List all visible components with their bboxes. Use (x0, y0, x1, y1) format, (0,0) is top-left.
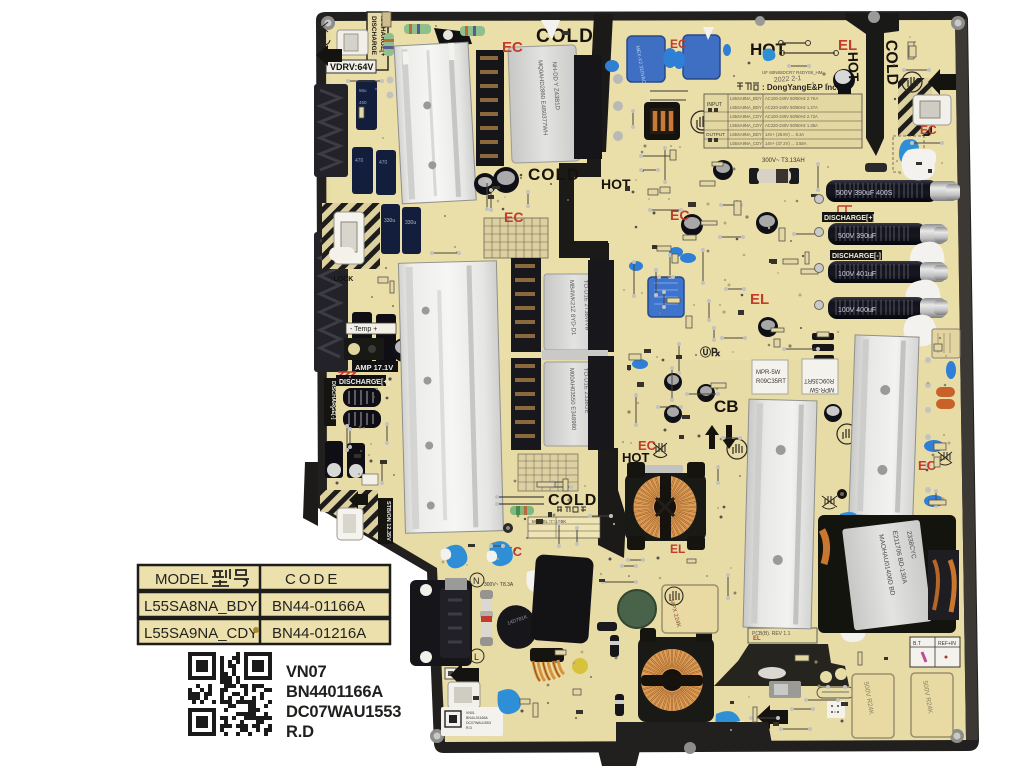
svg-text:INPUT: INPUT (707, 102, 722, 108)
svg-text:450: 450 (359, 100, 367, 105)
svg-text:L55SA8NA_BDY: L55SA8NA_BDY (144, 598, 257, 615)
svg-text:DISCHARGE: DISCHARGE (370, 16, 377, 56)
svg-text:COLD: COLD (548, 492, 597, 509)
svg-text:N: N (473, 576, 480, 586)
svg-text:AC220-240V 50/60Hz 1.35A: AC220-240V 50/60Hz 1.35A (765, 123, 818, 128)
svg-text:STB/ON 12.35V: STB/ON 12.35V (385, 501, 391, 541)
svg-text:L: L (474, 652, 479, 662)
svg-text:COLD: COLD (536, 26, 594, 47)
svg-text:EL: EL (750, 291, 769, 308)
svg-text:AC100-240V 50/60Hz 2.7KA: AC100-240V 50/60Hz 2.7KA (765, 96, 819, 101)
svg-text:EC: EC (638, 438, 657, 453)
svg-text:14V+ (28.8V) ... 8.3A: 14V+ (28.8V) ... 8.3A (765, 132, 804, 137)
svg-text:VN01: VN01 (466, 711, 475, 715)
svg-text:EC: EC (920, 123, 937, 137)
svg-text:L55SA8NA_BDY: L55SA8NA_BDY (730, 132, 762, 137)
svg-text:CODE: CODE (285, 571, 340, 588)
svg-text:EL: EL (753, 636, 761, 642)
svg-text:L55SA8NA_BDY: L55SA8NA_BDY (730, 96, 762, 101)
svg-text:300V~ T3.13AH: 300V~ T3.13AH (762, 158, 805, 164)
svg-text:REF+IN: REF+IN (938, 641, 956, 647)
svg-text:MPR-5W: MPR-5W (809, 386, 834, 392)
svg-text:DC07WAU1553: DC07WAU1553 (286, 703, 401, 721)
svg-text:L55SA8NA_BDY: L55SA8NA_BDY (730, 105, 762, 110)
svg-text:100V 401uF: 100V 401uF (838, 271, 876, 278)
svg-text:EL: EL (670, 542, 685, 556)
svg-text:OUTPUT: OUTPUT (706, 132, 725, 137)
svg-text:BN44-01166A: BN44-01166A (272, 598, 365, 615)
svg-text:R09C35RT: R09C35RT (756, 379, 786, 385)
svg-text:R.D: R.D (466, 726, 473, 730)
svg-text:330u: 330u (405, 220, 416, 226)
svg-text:DISCHARGE[-]: DISCHARGE[-] (330, 381, 336, 420)
svg-text:BN44-01166A: BN44-01166A (466, 716, 488, 720)
svg-text:EC: EC (504, 209, 523, 225)
svg-text:DC07WAU1553: DC07WAU1553 (466, 721, 491, 725)
svg-text:14V+ (37.2V) ... 3.58A: 14V+ (37.2V) ... 3.58A (765, 141, 807, 146)
svg-text:DISCHARGE[+]: DISCHARGE[+] (339, 379, 390, 386)
svg-text:AC100-240V 50/60Hz 2.72A: AC100-240V 50/60Hz 2.72A (765, 114, 818, 119)
svg-text:330u: 330u (384, 218, 395, 224)
svg-text:↑LOCK: ↑LOCK (330, 276, 353, 283)
svg-text:R.D: R.D (286, 723, 314, 741)
svg-text:VDRV:64V: VDRV:64V (330, 62, 373, 72)
svg-text:HOT: HOT (845, 52, 862, 83)
svg-text:DISCHARGE[-]: DISCHARGE[-] (832, 253, 881, 260)
svg-text:AC220-240V 50/60Hz 1.27A: AC220-240V 50/60Hz 1.27A (765, 105, 818, 110)
svg-text:EC: EC (670, 37, 687, 51)
svg-text:B.T: B.T (913, 641, 921, 647)
svg-text:- Temp +: - Temp + (350, 326, 377, 333)
svg-text:L55SA9NA_CDY: L55SA9NA_CDY (730, 141, 762, 146)
svg-text:AMP 17.1V: AMP 17.1V (355, 363, 393, 372)
svg-text:300V~ T8.3A: 300V~ T8.3A (484, 582, 514, 588)
svg-text:100V 400uF: 100V 400uF (838, 307, 876, 314)
svg-text:MODEL: MODEL (155, 571, 208, 588)
svg-text:L55SA9NA_CDY: L55SA9NA_CDY (144, 625, 258, 642)
svg-text:R09C35RT: R09C35RT (804, 377, 834, 383)
svg-text:L55SA9NA_CDY: L55SA9NA_CDY (730, 114, 762, 119)
svg-text:470: 470 (379, 160, 388, 166)
svg-text:470: 470 (355, 158, 364, 164)
svg-text:COLD: COLD (882, 40, 901, 86)
svg-text:BN44-01216A: BN44-01216A (272, 625, 366, 642)
svg-text:VN07: VN07 (286, 663, 326, 681)
svg-text:DISCHARGE[+]: DISCHARGE[+] (824, 215, 875, 222)
svg-text:BN4401166A: BN4401166A (286, 683, 383, 701)
svg-text:CB: CB (714, 397, 739, 416)
svg-text:MPR-5W: MPR-5W (756, 370, 781, 376)
svg-text:COLD: COLD (528, 165, 580, 184)
svg-text:UF 60N65DCR7 R4DY08_HM: UF 60N65DCR7 R4DY08_HM (762, 70, 823, 75)
svg-text:EC: EC (502, 39, 523, 56)
svg-text:500V 390uF 400S: 500V 390uF 400S (836, 190, 893, 197)
svg-text:L55SA9NA_CDY: L55SA9NA_CDY (730, 123, 762, 128)
svg-text:Ⓤ℞: Ⓤ℞ (700, 345, 721, 359)
svg-text:500V 390uF: 500V 390uF (838, 233, 876, 240)
svg-text:56u: 56u (359, 88, 367, 93)
